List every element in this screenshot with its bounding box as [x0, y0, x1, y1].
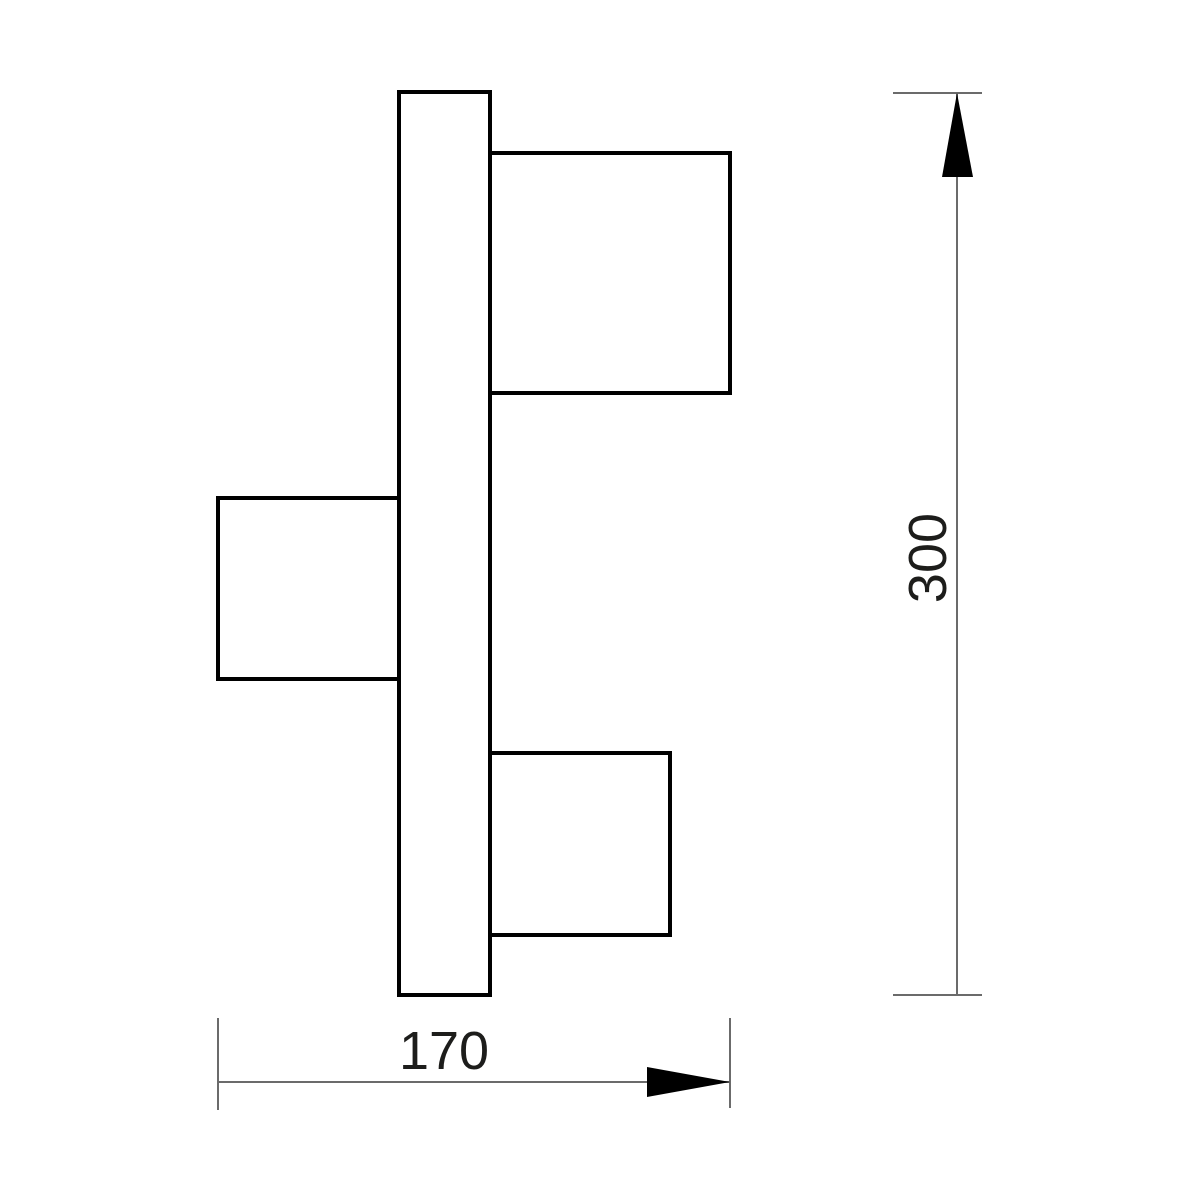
mounting-bar-rect: [399, 92, 490, 995]
width-dimension-arrowhead-icon: [647, 1067, 730, 1097]
width-dimension-label: 170: [399, 1021, 489, 1081]
technical-drawing: 300170: [0, 0, 1200, 1200]
lamp-head-top-right-rect: [490, 153, 730, 393]
lamp-head-bottom-right-rect: [490, 753, 670, 935]
lamp-head-middle-left-rect: [218, 498, 399, 679]
height-dimension-label: 300: [898, 513, 958, 603]
drawing-canvas: 300170: [0, 0, 1200, 1200]
height-dimension-arrowhead-icon: [942, 93, 973, 177]
